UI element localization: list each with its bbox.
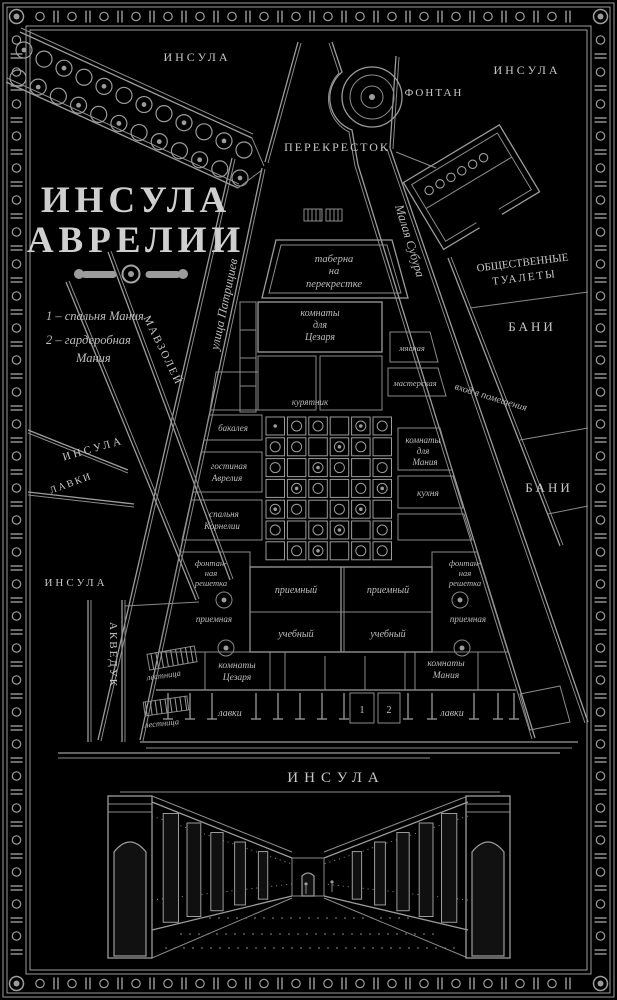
room-label-taberna-1: таберна — [315, 254, 354, 265]
room-label-caesar-top-1: комнаты — [300, 308, 339, 319]
room-label-manius-bot-1: комнаты — [427, 659, 465, 669]
legend-item-2b: Мания — [75, 351, 111, 365]
label-insula-bottom: ИНСУЛА — [287, 770, 384, 786]
room-label-stairs-2: лестница — [143, 716, 179, 730]
title-ornament — [74, 266, 188, 283]
label-insula-2: ИНСУЛА — [493, 63, 560, 77]
room-label-grate-left-2: ная — [205, 568, 217, 578]
room-label-grocery: бакалея — [218, 423, 248, 433]
room-label-anteroom-right: приемная — [450, 614, 486, 624]
room-label-grate-right-3: решетка — [448, 578, 481, 588]
room-number-1: 1 — [360, 705, 365, 716]
label-mausoleum: МАВЗОЛЕЙ — [141, 314, 185, 388]
room-label-school-left: учебный — [277, 629, 313, 640]
room-label-cornelia-1: спальня — [209, 509, 239, 519]
room-label-kitchen: кухня — [417, 489, 439, 499]
label-insula-4: ИНСУЛА — [44, 577, 107, 589]
illustration-doorways — [163, 813, 457, 922]
toilet-seats — [423, 152, 489, 196]
room-label-manius-mid-3: Мания — [411, 457, 437, 467]
room-label-grate-right-1: фонтан- — [449, 558, 481, 568]
room-label-cornelia-2: Корнелии — [203, 521, 240, 531]
room-label-taberna-2: на — [329, 266, 339, 277]
room-label-caesar-top-2: для — [313, 320, 327, 331]
label-toilets: ОБЩЕСТВЕННЫЕ ТУАЛЕТЫ — [476, 251, 571, 289]
room-label-school-right: учебный — [369, 629, 405, 640]
room-label-grate-left-3: решетка — [194, 578, 227, 588]
room-label-caesar-bot-2: Цезаря — [222, 673, 251, 683]
page-title-line1: ИНСУЛА — [41, 180, 231, 221]
room-label-reception-right: приемный — [367, 585, 409, 596]
public-toilets-building — [403, 125, 542, 255]
label-aqueduct: АКВЕДУК — [107, 622, 119, 688]
bottom-rooms — [140, 646, 578, 748]
legend-item-1: 1 – спальня Мания — [46, 309, 144, 323]
room-label-aurelius-2: Аврелия — [211, 473, 242, 483]
room-label-manius-mid-1: комнаты — [405, 435, 440, 445]
label-shops: ЛАВКИ — [48, 471, 94, 497]
legend-item-2a: 2 – гардеробная — [46, 333, 131, 347]
room-label-reception-left: приемный — [275, 585, 317, 596]
bottom-section: ИНСУЛА — [58, 753, 560, 958]
label-baths-1: БАНИ — [508, 319, 555, 334]
room-label-stalls-left: лавки — [217, 708, 242, 719]
room-label-henhouse: курятник — [292, 397, 329, 407]
room-label-manius-mid-2: для — [417, 446, 430, 456]
room-number-2: 2 — [387, 705, 392, 716]
room-label-taberna-3: перекрестке — [306, 279, 362, 290]
room-label-grate-right-2: ная — [459, 568, 471, 578]
room-label-anteroom-left: приемная — [196, 614, 232, 624]
room-label-butcher: мясная — [398, 343, 425, 353]
insula-map-svg: ИНСУЛА АВРЕЛИИ 1 – спальня Мания 2 – гар… — [0, 0, 617, 1000]
room-label-aurelius-1: гостиная — [211, 461, 247, 471]
stall-partitions — [163, 693, 519, 719]
room-label-entrance: вход в помещения — [453, 381, 528, 414]
label-crossroad: ПЕРЕКРЕСТОК — [284, 140, 390, 154]
label-baths-2: БАНИ — [525, 480, 572, 495]
page-title-line2: АВРЕЛИИ — [27, 220, 245, 261]
room-label-caesar-bot-1: комнаты — [218, 661, 256, 671]
west-roads — [28, 251, 233, 742]
label-fountain: ФОНТАН — [405, 87, 464, 99]
room-label-caesar-top-3: Цезаря — [304, 332, 335, 343]
street-illustration — [108, 792, 510, 958]
room-label-grate-left-1: фонтан- — [195, 558, 227, 568]
map-canvas: ИНСУЛА АВРЕЛИИ 1 – спальня Мания 2 – гар… — [0, 0, 617, 1000]
storage-cell-grid — [266, 417, 392, 560]
room-label-manius-bot-2: Мания — [432, 671, 459, 681]
staircase-upper — [147, 646, 197, 670]
label-insula-1: ИНСУЛА — [163, 50, 230, 64]
room-label-stalls-right: лавки — [439, 708, 464, 719]
room-label-workshop: мастерская — [392, 378, 436, 388]
kiosk — [304, 209, 342, 221]
